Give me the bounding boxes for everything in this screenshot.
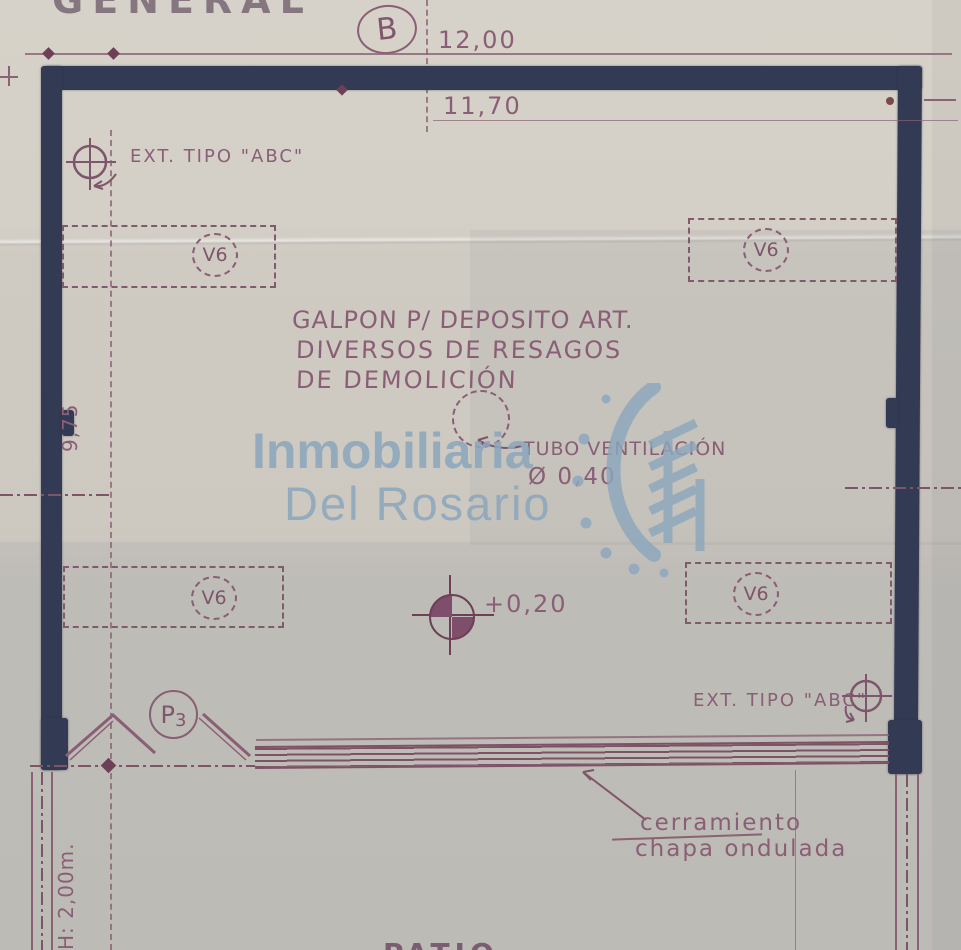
room-title-line2: DIVERSOS DE RESAGOS: [296, 336, 623, 364]
sheet-caption: GENERAL: [52, 0, 313, 22]
bottom-wall-inner-line: [256, 734, 889, 740]
door-height-note: H: 2,00m.: [54, 842, 78, 950]
window-tag: V6: [743, 228, 789, 272]
edge-tick-v: [8, 66, 10, 86]
level-mark-symbol: [429, 594, 475, 640]
axis-tick-left: [0, 494, 110, 496]
lower-wall-line: [31, 772, 33, 950]
window-box-top-left: V6: [62, 225, 276, 288]
ext-top-label: EXT. TIPO "ABC": [130, 146, 304, 167]
fire-extinguisher-symbol-top: [64, 136, 140, 202]
window-box-bottom-right: V6: [685, 562, 892, 624]
level-mark-value: +0,20: [484, 590, 568, 618]
window-tag: V6: [192, 233, 238, 277]
vent-leader-arrow: [472, 432, 524, 456]
window-tag: V6: [733, 572, 779, 616]
vent-diameter: Ø 0,40: [528, 464, 617, 490]
window-box-bottom-left: V6: [63, 566, 284, 628]
door-axis-line: [30, 765, 255, 767]
wall-column-right: [886, 398, 898, 428]
vent-label: TUBO VENTILACIÓN: [523, 438, 726, 460]
lower-reference-line: [795, 770, 796, 950]
axis-bubble: B: [355, 2, 420, 57]
lower-wall-line: [51, 772, 53, 950]
axis-tick-right: [845, 487, 961, 489]
lower-axis-line: [41, 772, 43, 950]
patio-label: PATIO: [383, 937, 499, 950]
room-title-line1: GALPON P/ DEPOSITO ART.: [292, 306, 635, 334]
watermark-line2: Del Rosario: [284, 476, 552, 531]
dimension-tick: [107, 47, 120, 60]
wall-top: [45, 66, 922, 90]
dim-left-height: 9,75: [58, 392, 82, 452]
scanned-floor-plan: GENERAL B 12,00 11,70 EXT. TIPO "ABC" V6…: [0, 0, 961, 950]
window-box-top-right: V6: [688, 218, 897, 282]
ink-dot: [886, 97, 894, 105]
lower-wall-line: [917, 774, 919, 950]
lower-wall-line: [895, 774, 897, 950]
paper-shade-edge: [932, 0, 961, 950]
dim-inner-width: 11,70: [443, 92, 522, 120]
dimension-line-inner: [433, 120, 958, 121]
dim-overall-width: 12,00: [438, 26, 517, 54]
right-wall-tick: [924, 99, 956, 101]
window-tag: V6: [191, 576, 237, 620]
closure-note-line2: chapa ondulada: [635, 836, 847, 862]
lower-axis-line: [906, 774, 908, 950]
closure-note-line1: cerramiento: [640, 810, 802, 836]
fire-extinguisher-symbol-bottom: [832, 672, 902, 732]
dimension-tick: [42, 47, 55, 60]
